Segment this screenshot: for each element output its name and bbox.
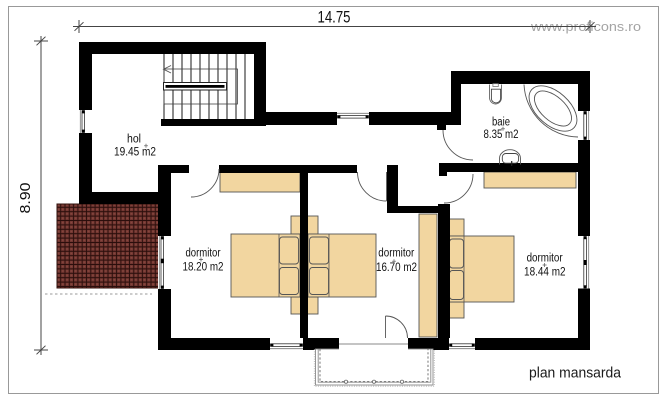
svg-text:18.44 m2: 18.44 m2 xyxy=(524,267,566,279)
svg-text:baie: baie xyxy=(492,117,510,129)
svg-text:18.20 m2: 18.20 m2 xyxy=(183,262,224,274)
svg-text:hol: hol xyxy=(127,134,141,146)
svg-text:8.35 m2: 8.35 m2 xyxy=(484,129,519,141)
svg-text:14.75: 14.75 xyxy=(318,8,351,27)
svg-text:dormitor: dormitor xyxy=(186,248,221,260)
svg-text:16.70 m2: 16.70 m2 xyxy=(376,262,417,274)
svg-text:19.45 m2: 19.45 m2 xyxy=(114,147,156,159)
svg-text:dormitor: dormitor xyxy=(527,253,563,265)
svg-text:dormitor: dormitor xyxy=(378,248,414,260)
svg-text:8.90: 8.90 xyxy=(17,183,34,214)
svg-text:plan mansarda: plan mansarda xyxy=(529,365,622,382)
